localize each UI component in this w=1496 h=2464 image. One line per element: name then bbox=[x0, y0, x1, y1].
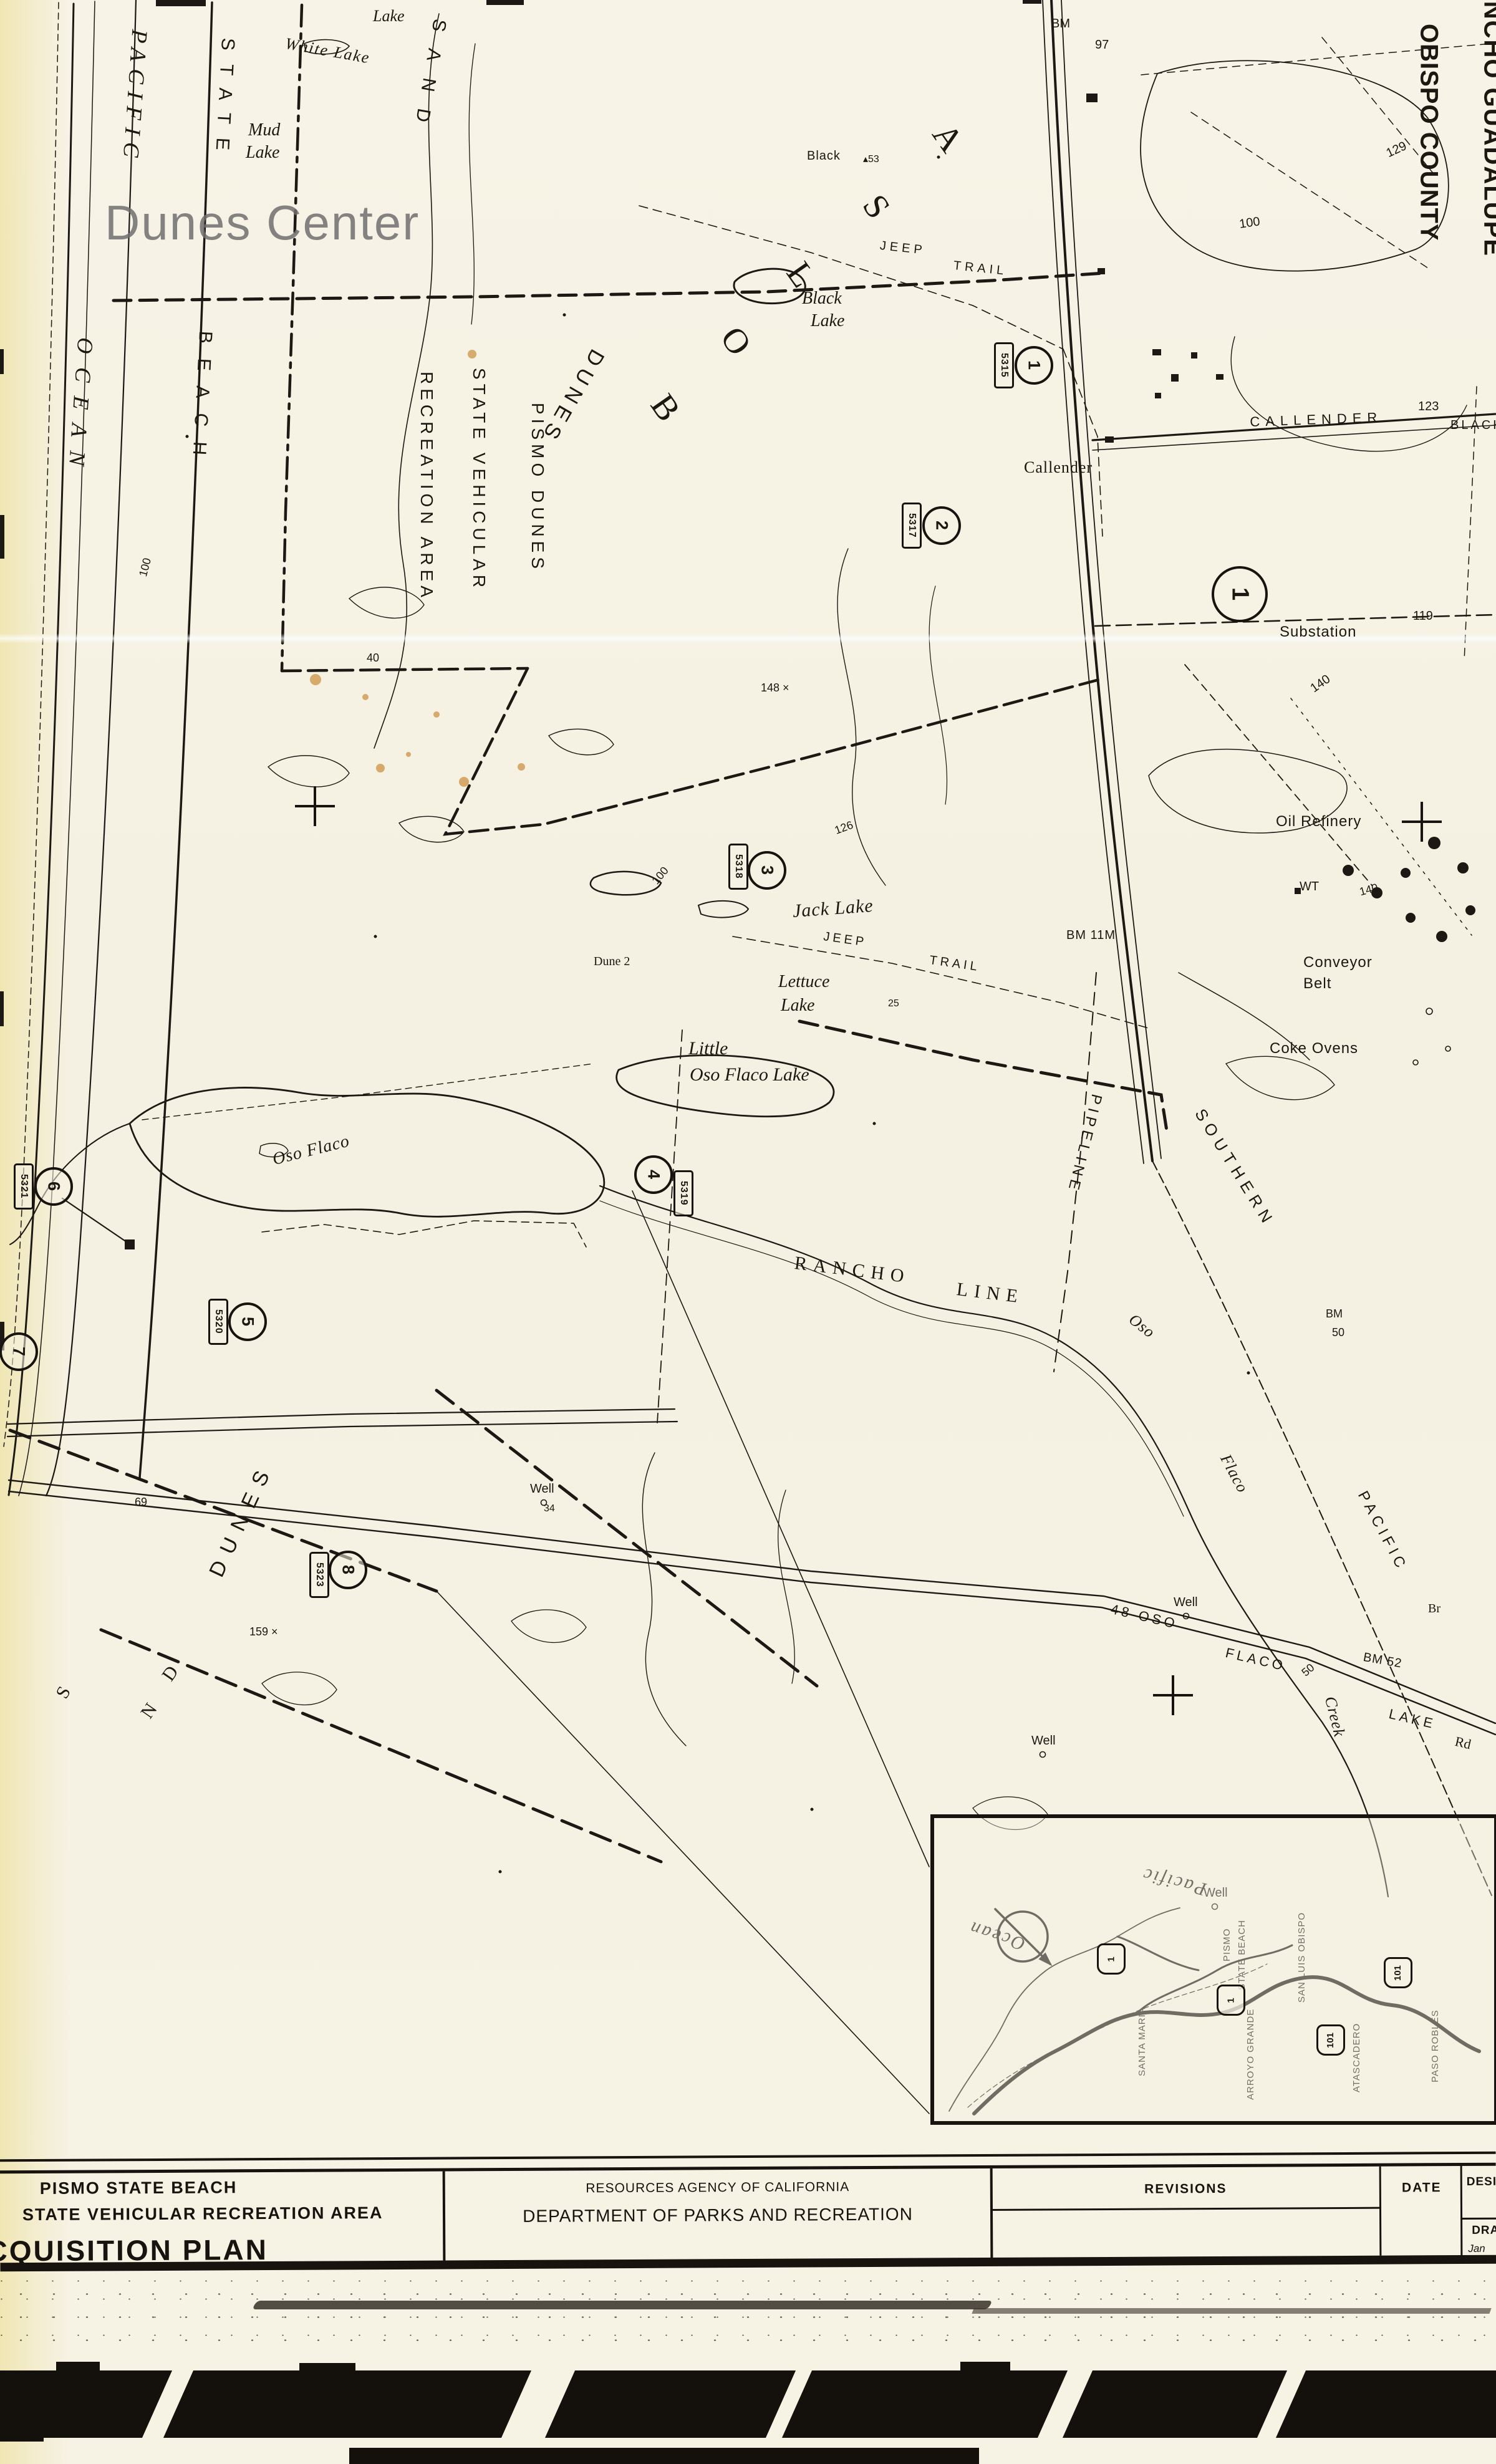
project-title-line1: PISMO STATE BEACH bbox=[40, 2178, 238, 2198]
map-label: Black bbox=[807, 150, 841, 163]
parcel-marker-5: 5 bbox=[228, 1302, 267, 1341]
map-label: 159 × bbox=[249, 1626, 278, 1638]
parcel-id-box: 5321 bbox=[14, 1163, 34, 1210]
parcel-id-box: 5320 bbox=[208, 1299, 228, 1345]
map-label: Well bbox=[1174, 1596, 1198, 1609]
map-label: Coke Ovens bbox=[1270, 1041, 1358, 1057]
divider bbox=[990, 2168, 993, 2258]
divider bbox=[1460, 2166, 1463, 2255]
map-label: 40 bbox=[367, 652, 379, 664]
parcel-id-box: 5323 bbox=[309, 1552, 329, 1598]
parcel-number: 4 bbox=[644, 1170, 664, 1179]
parcel-id: 5323 bbox=[314, 1562, 325, 1587]
revisions-header: REVISIONS bbox=[990, 2181, 1381, 2198]
map-label: 97 bbox=[1095, 39, 1109, 52]
torn-gap bbox=[140, 2367, 195, 2442]
paper-stain bbox=[406, 752, 411, 757]
parcel-id: 5320 bbox=[213, 1309, 224, 1334]
map-label: WT bbox=[1300, 880, 1319, 893]
revisions-underline bbox=[990, 2207, 1381, 2211]
map-label: BM 11M bbox=[1066, 929, 1116, 942]
parcel-id-box: 5315 bbox=[994, 342, 1014, 388]
inset-highway-number: 1 bbox=[1226, 1998, 1237, 2003]
torn-gap bbox=[764, 2367, 813, 2442]
parcel-number: 8 bbox=[339, 1565, 358, 1574]
inset-highway-number: 101 bbox=[1393, 1965, 1404, 1980]
paper-stain bbox=[362, 694, 369, 700]
map-label: BLACK bbox=[1450, 419, 1496, 432]
section-corner-cross bbox=[295, 786, 335, 826]
map-label: Mud bbox=[248, 121, 280, 139]
torn-gap bbox=[499, 2367, 576, 2442]
highway-number: 1 bbox=[1227, 587, 1253, 600]
parcel-id-box: 5318 bbox=[728, 844, 748, 890]
map-label: Black bbox=[802, 289, 842, 307]
paper-stain bbox=[376, 764, 385, 772]
section-corner-cross bbox=[1402, 802, 1442, 842]
map-label: Conveyor bbox=[1303, 955, 1373, 971]
map-label: 25 bbox=[888, 999, 899, 1009]
map-label: 123 bbox=[1418, 400, 1439, 413]
map-label: Oso Flaco Lake bbox=[690, 1065, 809, 1084]
title-rule-top2 bbox=[0, 2163, 1496, 2174]
parcel-marker-3: 3 bbox=[748, 851, 786, 890]
map-label: 50 bbox=[1332, 1327, 1344, 1339]
torn-edge-bump bbox=[960, 2362, 1010, 2372]
parcel-marker-2: 2 bbox=[922, 506, 961, 545]
map-label: 34 bbox=[544, 1504, 555, 1514]
map-label: BM bbox=[1326, 1308, 1343, 1320]
map-label: 119 bbox=[1413, 610, 1433, 623]
parcel-marker-4: 4 bbox=[634, 1155, 673, 1194]
map-label: 148 × bbox=[761, 682, 789, 694]
map-label: PISMO DUNES bbox=[529, 403, 547, 573]
title-rule-top bbox=[0, 2152, 1496, 2162]
parcel-marker-8: 8 bbox=[329, 1551, 367, 1589]
parcel-number: 3 bbox=[758, 865, 777, 875]
map-label: Well bbox=[1031, 1735, 1056, 1748]
drawn-note: Jan bbox=[1468, 2243, 1485, 2255]
inset-highway-shield: 101 bbox=[1384, 1957, 1412, 1988]
parcel-marker-1: 1 bbox=[1015, 346, 1053, 385]
scanned-map-page: Dunes Center PACIFICOCEANSTATEBEACHSANDD… bbox=[0, 0, 1496, 2464]
map-label: Lettuce bbox=[778, 973, 829, 991]
designed-header: DESIG bbox=[1467, 2175, 1496, 2189]
torn-edge-bump bbox=[299, 2363, 355, 2372]
inset-highway-number: 1 bbox=[1106, 1956, 1117, 1961]
drawn-header: DRA bbox=[1472, 2224, 1496, 2238]
title-block: PISMO STATE BEACH STATE VEHICULAR RECREA… bbox=[0, 2144, 1496, 2281]
paper-stain bbox=[459, 777, 469, 787]
paper-stain bbox=[468, 350, 476, 359]
paper-stain bbox=[310, 674, 321, 685]
parcel-marker-7: 7 bbox=[0, 1332, 38, 1371]
watermark-text: Dunes Center bbox=[105, 195, 420, 251]
parcel-id: 5318 bbox=[733, 854, 744, 879]
highway-1-marker: 1 bbox=[1212, 566, 1268, 622]
map-label: Well bbox=[530, 1483, 554, 1496]
bottom-black-bar bbox=[349, 2448, 979, 2464]
map-label: 69 bbox=[135, 1496, 147, 1508]
map-label: 100 bbox=[1238, 215, 1261, 231]
map-label: BM bbox=[1051, 17, 1070, 31]
section-corner-cross bbox=[1153, 1675, 1193, 1715]
map-label: Dune 2 bbox=[594, 955, 630, 968]
scan-crease bbox=[0, 633, 1496, 643]
inset-highway-shield: 1 bbox=[1097, 1943, 1126, 1975]
scan-torn-band bbox=[0, 2370, 1496, 2438]
parcel-id-box: 5319 bbox=[673, 1170, 693, 1216]
map-label: Substation bbox=[1280, 625, 1356, 640]
map-label: RECREATION AREA bbox=[418, 372, 436, 602]
parcel-id: 5317 bbox=[906, 513, 917, 538]
department-name: DEPARTMENT OF PARKS AND RECREATION bbox=[445, 2204, 990, 2227]
divider bbox=[1379, 2167, 1382, 2256]
scan-smear bbox=[252, 2301, 993, 2309]
map-label: OBISPO COUNTY bbox=[1416, 24, 1442, 241]
parcel-id: 5321 bbox=[18, 1174, 29, 1199]
map-label: Lake bbox=[811, 312, 844, 330]
parcel-number: 7 bbox=[9, 1347, 29, 1356]
scan-smear bbox=[972, 2308, 1491, 2314]
map-label: Belt bbox=[1303, 976, 1331, 992]
desig-underline bbox=[1460, 2218, 1496, 2220]
inset-highway-shield: 101 bbox=[1316, 2024, 1345, 2056]
parcel-id-box: 5317 bbox=[902, 503, 922, 549]
cross-bar bbox=[314, 786, 316, 826]
cross-bar bbox=[1172, 1675, 1174, 1715]
map-label: Callender bbox=[1024, 459, 1093, 476]
date-header: DATE bbox=[1383, 2180, 1460, 2196]
map-label: Br bbox=[1428, 1602, 1441, 1615]
map-label: Little bbox=[688, 1039, 728, 1058]
parcel-id: 5315 bbox=[998, 353, 1010, 378]
plan-title: ACQUISITION PLAN bbox=[0, 2233, 268, 2268]
map-label: ▴53 bbox=[863, 155, 879, 165]
parcel-number: 5 bbox=[238, 1317, 258, 1326]
map-label: Lake bbox=[781, 996, 814, 1014]
torn-edge-bump bbox=[0, 2404, 44, 2442]
inset-highway-number: 101 bbox=[1326, 2032, 1336, 2048]
parcel-marker-6: 6 bbox=[34, 1167, 73, 1206]
map-label: RANCHO GUADALUPE bbox=[1479, 0, 1496, 257]
map-label: STATE VEHICULAR bbox=[470, 368, 488, 592]
map-label: Lake bbox=[246, 143, 279, 161]
parcel-number: 2 bbox=[932, 521, 952, 530]
torn-edge-bump bbox=[56, 2362, 100, 2372]
torn-gap bbox=[1036, 2367, 1094, 2442]
torn-gap bbox=[1255, 2367, 1307, 2442]
paper-stain bbox=[433, 711, 440, 718]
agency-name: RESOURCES AGENCY OF CALIFORNIA bbox=[445, 2179, 990, 2197]
parcel-number: 1 bbox=[1025, 360, 1044, 370]
paper-stain bbox=[518, 763, 525, 771]
cross-bar bbox=[1421, 802, 1423, 842]
map-label: Lake bbox=[373, 7, 405, 24]
project-title-line2: STATE VEHICULAR RECREATION AREA bbox=[22, 2203, 384, 2225]
map-label: Oil Refinery bbox=[1276, 814, 1361, 830]
parcel-id: 5319 bbox=[678, 1181, 689, 1206]
inset-highway-shield: 1 bbox=[1217, 1985, 1245, 2016]
parcel-number: 6 bbox=[44, 1181, 64, 1191]
